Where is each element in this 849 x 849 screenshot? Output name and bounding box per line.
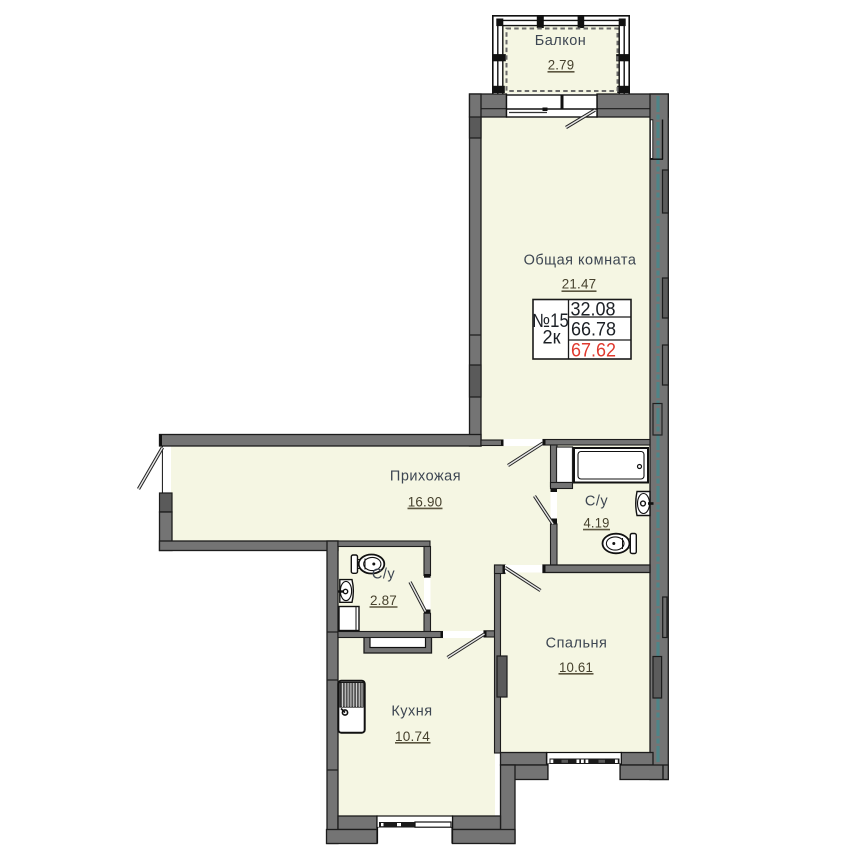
svg-text:Балкон: Балкон <box>535 33 587 49</box>
svg-text:16.90: 16.90 <box>408 494 443 510</box>
svg-text:Прихожая: Прихожая <box>390 469 461 485</box>
svg-text:67.62: 67.62 <box>571 340 616 362</box>
svg-text:2к: 2к <box>543 328 562 349</box>
svg-text:2.87: 2.87 <box>370 592 397 608</box>
svg-text:10.61: 10.61 <box>559 659 593 675</box>
svg-text:10.74: 10.74 <box>395 728 430 744</box>
svg-text:2.79: 2.79 <box>548 57 575 73</box>
svg-text:Кухня: Кухня <box>391 704 432 720</box>
svg-text:32.08: 32.08 <box>571 299 616 321</box>
svg-text:Общая комната: Общая комната <box>524 253 637 269</box>
svg-text:Спальня: Спальня <box>546 635 608 651</box>
svg-text:21.47: 21.47 <box>562 276 597 292</box>
svg-text:66.78: 66.78 <box>571 319 616 341</box>
svg-text:4.19: 4.19 <box>584 515 610 531</box>
svg-text:С/у: С/у <box>585 493 609 509</box>
svg-text:С/у: С/у <box>372 567 396 583</box>
